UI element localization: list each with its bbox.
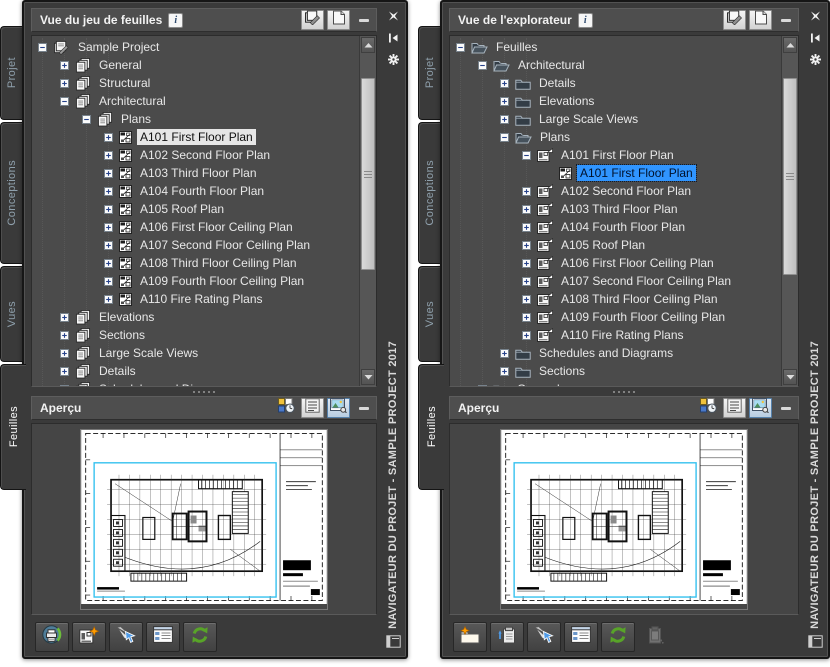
scroll-down-button[interactable] [361,369,375,385]
collapse-panel-button[interactable] [356,12,372,28]
import-layout-button[interactable] [490,622,524,652]
tree-item[interactable]: A103 Third Floor Plan [452,200,781,218]
scroll-up-button[interactable] [361,37,375,53]
palette-properties-icon[interactable] [808,635,823,653]
tree-item[interactable]: Feuilles [452,38,781,56]
layout-icon [537,202,553,216]
sheet-icon [119,293,132,306]
expand-toggle-icon[interactable] [104,277,113,286]
expander-spacer [544,169,553,178]
tree-item[interactable]: A110 Fire Rating Plans [452,326,781,344]
tree-item-label: Schedules and Diagrams [536,345,676,361]
close-palette-button[interactable] [806,9,824,26]
splitter-handle[interactable] [449,387,799,396]
gear-icon [809,53,822,71]
tree-item-label: Plans [537,129,573,145]
rename-button[interactable] [527,622,561,652]
preview-area [449,423,799,615]
new-sheet-icon [79,626,99,649]
tree-item-label: A102 Second Floor Plan [137,147,273,163]
expand-toggle-icon[interactable] [500,115,509,124]
palette-tab-feuilles[interactable]: Feuilles [0,364,26,490]
tree-item-label: Plans [118,111,154,127]
subset-icon [75,346,91,361]
minus-icon [781,19,791,22]
tree-item-label: Feuilles [493,39,540,55]
tree-item[interactable]: Plans [452,128,781,146]
palette-frame: Vue de l'explorateur i FeuillesArchitect… [440,0,830,659]
layout-icon [537,274,553,288]
tree-item-label: A101 First Floor Plan [137,129,256,145]
folder-open-icon [471,41,488,54]
expand-toggle-icon[interactable] [522,295,531,304]
minus-icon [359,407,369,410]
tree-item-label: Architectural [96,93,169,109]
expand-toggle-icon[interactable] [522,223,531,232]
sheet-selection-button[interactable] [301,10,324,30]
scrollbar-thumb[interactable] [361,78,375,270]
layout-icon [537,220,553,234]
collapse-preview-button[interactable] [356,400,372,416]
publish-icon [42,625,62,649]
tree-item-label: A109 Fourth Floor Ceiling Plan [137,273,307,289]
refresh-icon [608,626,628,649]
folder-closed-icon [515,365,531,378]
list-icon [727,398,742,418]
expand-toggle-icon[interactable] [522,313,531,322]
tree-item[interactable]: A104 Fourth Floor Plan [452,218,781,236]
sheets-icon [304,10,322,30]
close-palette-button[interactable] [384,9,402,26]
auto-hide-button[interactable] [384,31,402,48]
tree-item[interactable]: A108 Third Floor Ceiling Plan [34,254,359,272]
tree-item-label: Elevations [536,93,597,109]
collapse-toggle-icon[interactable] [478,61,487,70]
import-layout-icon [498,626,517,649]
tree-item[interactable]: Elevations [452,92,781,110]
tree-item-label: Sample Project [75,39,162,55]
tree-item-label: A108 Third Floor Ceiling Plan [558,291,721,307]
tree-item[interactable]: A103 Third Floor Plan [34,164,359,182]
expand-toggle-icon[interactable] [522,241,531,250]
image-icon [752,398,769,418]
tree-item[interactable]: Details [34,362,359,380]
expand-toggle-icon[interactable] [104,151,113,160]
collapse-toggle-icon[interactable] [38,43,47,52]
paste-disabled-button [638,622,672,652]
palette-settings-button[interactable] [806,53,824,70]
tree-item[interactable]: Sample Project [34,38,359,56]
details-view-icon [153,626,173,648]
expand-toggle-icon[interactable] [104,223,113,232]
tree-item[interactable]: A107 Second Floor Ceiling Plan [452,272,781,290]
expand-toggle-icon[interactable] [104,187,113,196]
tree-item[interactable]: A108 Third Floor Ceiling Plan [452,290,781,308]
tree-item-label: A107 Second Floor Ceiling Plan [137,237,313,253]
layout-icon [537,184,553,198]
tree-item-label: A106 First Floor Ceiling Plan [558,255,717,271]
tree-item-label: A110 Fire Rating Plans [558,327,687,343]
sheet-set-icon [53,40,70,55]
subset-icon [75,94,91,109]
expand-toggle-icon[interactable] [478,385,487,387]
expand-toggle-icon[interactable] [104,241,113,250]
splitter-handle[interactable] [31,387,377,396]
palette-tab-projet[interactable]: Projet [418,26,441,120]
tree-item[interactable]: A105 Roof Plan [452,236,781,254]
preview-details-button[interactable] [697,398,720,418]
palette-tab-projet[interactable]: Projet [0,26,23,120]
palette-tab-conceptions[interactable]: Conceptions [418,122,441,264]
expand-toggle-icon[interactable] [522,331,531,340]
collapse-toggle-icon[interactable] [60,97,69,106]
expand-toggle-icon[interactable] [500,79,509,88]
expand-toggle-icon[interactable] [104,205,113,214]
subset-icon [75,328,91,343]
tree-item[interactable]: General [452,380,781,386]
new-sheet-page-button[interactable] [749,10,772,30]
subset-icon [75,364,91,379]
folder-open-icon [493,59,510,72]
details-icon [700,398,717,418]
folder-closed-icon [515,113,531,126]
palette-frame: Vue du jeu de feuilles i Sample ProjectG… [22,0,408,659]
close-icon [387,9,400,27]
tree-item[interactable]: Large Scale Views [452,110,781,128]
explorer-tree: FeuillesArchitecturalDetailsElevationsLa… [449,35,799,387]
tree-item-label: A105 Roof Plan [137,201,227,217]
tree-item[interactable]: A106 First Floor Ceiling Plan [452,254,781,272]
explorer-toolbar [449,615,799,655]
tree-item[interactable]: A109 Fourth Floor Ceiling Plan [452,308,781,326]
expand-toggle-icon[interactable] [104,169,113,178]
tree-item-label: Details [96,363,139,379]
tree-item[interactable]: A105 Roof Plan [34,200,359,218]
subset-icon [97,112,113,127]
refresh-button[interactable] [183,622,217,652]
tree-item[interactable]: A110 Fire Rating Plans [34,290,359,308]
preview-details-button[interactable] [275,398,298,418]
sheet-preview-thumbnail [81,430,327,609]
tree-item-label: Structural [96,75,153,91]
expand-toggle-icon[interactable] [104,295,113,304]
layout-icon [537,292,553,306]
tree-item-label: A101 First Floor Plan [558,147,677,163]
collapse-toggle-icon[interactable] [82,115,91,124]
tree-item-label: A103 Third Floor Plan [558,201,681,217]
sheet-icon [119,203,132,216]
auto-hide-button[interactable] [806,31,824,48]
collapse-panel-button[interactable] [778,12,794,28]
tree-item-label: A103 Third Floor Plan [137,165,260,181]
sheet-icon [119,185,132,198]
paste-disabled-icon [647,626,664,649]
tree-item[interactable]: A101 First Floor Plan [452,164,781,182]
tree-item[interactable]: General [34,56,359,74]
folder-open-icon [515,131,532,144]
details-view-button[interactable] [564,622,598,652]
tree-item-label: General [514,381,563,386]
preview-list-button[interactable] [301,398,324,418]
tree-item-label: Sections [536,363,588,379]
palette-settings-button[interactable] [384,53,402,70]
tree-item-label: Large Scale Views [536,111,641,127]
tree-item-label: A101 First Floor Plan [577,165,696,181]
tree-item-label: A107 Second Floor Ceiling Plan [558,273,734,289]
new-folder-button[interactable] [453,622,487,652]
close-icon [809,9,822,27]
layout-icon [537,148,553,162]
tree-item[interactable]: Details [452,74,781,92]
sheet-set-view-palette: ProjetConceptionsVuesFeuilles Vue du jeu… [0,0,408,659]
tree-item[interactable]: Schedules and Diagrams [452,344,781,362]
expand-toggle-icon[interactable] [522,187,531,196]
preview-titlebar[interactable]: Aperçu [31,396,377,420]
tree-item[interactable]: A107 Second Floor Ceiling Plan [34,236,359,254]
preview-title: Aperçu [40,401,81,415]
expand-toggle-icon[interactable] [60,349,69,358]
explorer-view-palette: ProjetConceptionsVuesFeuilles Vue de l'e… [418,0,830,659]
page-icon [754,10,768,30]
palette-tab-feuilles[interactable]: Feuilles [418,364,444,490]
panel-titlebar[interactable]: Vue du jeu de feuilles i [31,8,377,32]
subset-icon [75,76,91,91]
tree-item-label: A102 Second Floor Plan [558,183,694,199]
info-icon[interactable]: i [578,13,593,28]
subset-icon [75,58,91,73]
preview-titlebar[interactable]: Aperçu [449,396,799,420]
expand-toggle-icon[interactable] [60,331,69,340]
tree-item[interactable]: A102 Second Floor Plan [34,146,359,164]
sheet-icon [119,131,132,144]
refresh-icon [190,626,210,649]
palette-side-titlebar[interactable]: NAVIGATEUR DU PROJET - SAMPLE PROJECT 20… [802,2,828,657]
expand-toggle-icon[interactable] [60,61,69,70]
folder-closed-icon [493,383,509,387]
expand-toggle-icon[interactable] [500,367,509,376]
tree-scrollbar[interactable] [781,36,798,386]
sheet-icon [119,221,132,234]
folder-closed-icon [515,95,531,108]
subset-icon [75,310,91,325]
tree-item[interactable]: A104 Fourth Floor Plan [34,182,359,200]
tree-item[interactable]: A101 First Floor Plan [34,128,359,146]
tree-item[interactable]: A102 Second Floor Plan [452,182,781,200]
tree-item[interactable]: A101 First Floor Plan [452,146,781,164]
tree-item[interactable]: Sections [34,326,359,344]
preview-list-button[interactable] [723,398,746,418]
tree-item-label: Schedules and Diagrams [96,381,236,386]
tree-item-label: A104 Fourth Floor Plan [558,219,688,235]
tree-item-label: Details [536,75,579,91]
expand-toggle-icon[interactable] [60,385,69,387]
preview-image-button[interactable] [327,398,350,418]
sheet-icon [119,167,132,180]
expand-toggle-icon[interactable] [522,277,531,286]
details-view-icon [571,626,591,648]
expand-toggle-icon[interactable] [60,367,69,376]
expand-toggle-icon[interactable] [500,349,509,358]
preview-title: Aperçu [458,401,499,415]
tree-item-label: A105 Roof Plan [558,237,648,253]
minus-icon [359,19,369,22]
layout-icon [537,310,553,324]
tree-item[interactable]: Architectural [34,92,359,110]
page-icon [332,10,346,30]
sheet-selection-button[interactable] [723,10,746,30]
palette-vertical-title: NAVIGATEUR DU PROJET - SAMPLE PROJECT 20… [387,341,399,629]
panel-title: Vue de l'explorateur [458,13,572,27]
scroll-up-button[interactable] [783,37,797,53]
tree-item-label: Sections [96,327,148,343]
collapse-toggle-icon[interactable] [522,151,531,160]
panel-title: Vue du jeu de feuilles [40,13,162,27]
expand-toggle-icon[interactable] [104,133,113,142]
tree-item[interactable]: A109 Fourth Floor Ceiling Plan [34,272,359,290]
palette-tab-conceptions[interactable]: Conceptions [0,122,23,264]
image-icon [330,398,347,418]
tree-item-label: Elevations [96,309,157,325]
subset-icon [75,382,91,387]
folder-closed-icon [515,347,531,360]
info-icon[interactable]: i [168,13,183,28]
layout-icon [537,238,553,252]
list-icon [305,398,320,418]
tree-item-label: Architectural [515,57,588,73]
expand-toggle-icon[interactable] [60,79,69,88]
collapse-preview-button[interactable] [778,400,794,416]
refresh-button[interactable] [601,622,635,652]
publish-button[interactable] [35,622,69,652]
scroll-down-button[interactable] [783,369,797,385]
palette-vertical-title: NAVIGATEUR DU PROJET - SAMPLE PROJECT 20… [809,341,821,629]
layout-icon [537,256,553,270]
tree-item-label: General [96,57,145,73]
expand-toggle-icon[interactable] [500,97,509,106]
new-sheet-page-button[interactable] [327,10,350,30]
tree-item-label: A108 Third Floor Ceiling Plan [137,255,300,271]
palette-side-titlebar[interactable]: NAVIGATEUR DU PROJET - SAMPLE PROJECT 20… [380,2,406,657]
expand-toggle-icon[interactable] [522,205,531,214]
sheet-icon [119,275,132,288]
pin-icon [809,31,821,49]
sheet-set-tree: Sample ProjectGeneralStructuralArchitect… [31,35,377,387]
preview-image-button[interactable] [749,398,772,418]
tree-item[interactable]: Structural [34,74,359,92]
palette-tab-vues[interactable]: Vues [0,266,23,362]
sheet-icon [119,257,132,270]
tree-item[interactable]: Schedules and Diagrams [34,380,359,386]
gear-icon [387,53,400,71]
scrollbar-thumb[interactable] [783,78,797,275]
preview-area [31,423,377,615]
expand-toggle-icon[interactable] [104,259,113,268]
tree-item[interactable]: Elevations [34,308,359,326]
tree-item[interactable]: Architectural [452,56,781,74]
rename-icon [116,626,136,649]
tree-item-label: A106 First Floor Ceiling Plan [137,219,296,235]
new-folder-icon [460,626,480,649]
new-sheet-button[interactable] [72,622,106,652]
tree-item[interactable]: Sections [452,362,781,380]
sheet-set-toolbar [31,615,377,655]
layout-icon [537,328,553,342]
tree-item[interactable]: Large Scale Views [34,344,359,362]
collapse-toggle-icon[interactable] [500,133,509,142]
details-view-button[interactable] [146,622,180,652]
rename-button[interactable] [109,622,143,652]
rename-icon [534,626,554,649]
sheet-icon [119,239,132,252]
tree-item-label: Large Scale Views [96,345,201,361]
collapse-toggle-icon[interactable] [456,43,465,52]
tree-item-label: A104 Fourth Floor Plan [137,183,267,199]
tree-scrollbar[interactable] [359,36,376,386]
sheet-preview-thumbnail [501,430,747,609]
sheet-icon [119,149,132,162]
tree-item[interactable]: A106 First Floor Ceiling Plan [34,218,359,236]
palette-properties-icon[interactable] [386,635,401,653]
tree-item[interactable]: Plans [34,110,359,128]
palette-tab-vues[interactable]: Vues [418,266,441,362]
pin-icon [387,31,399,49]
sheets-icon [726,10,744,30]
expand-toggle-icon[interactable] [522,259,531,268]
minus-icon [781,407,791,410]
expand-toggle-icon[interactable] [60,313,69,322]
tree-item-label: A110 Fire Rating Plans [137,291,266,307]
sheet-icon [559,167,572,180]
folder-closed-icon [515,77,531,90]
details-icon [278,398,295,418]
panel-titlebar[interactable]: Vue de l'explorateur i [449,8,799,32]
tree-item-label: A109 Fourth Floor Ceiling Plan [558,309,728,325]
